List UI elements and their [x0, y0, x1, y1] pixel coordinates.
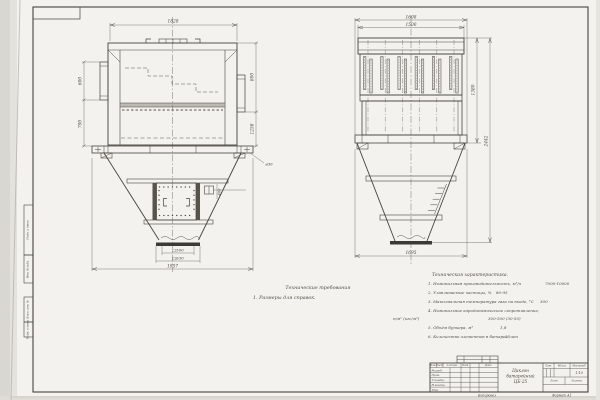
lit-label: Лит.	[544, 365, 552, 368]
format-label: Формат А1	[552, 394, 572, 398]
hatch-post-right	[196, 183, 200, 220]
stamp-row-label: Утв.	[432, 388, 439, 392]
mid-band	[120, 103, 225, 107]
stamp-header-cell: Подп.	[461, 364, 469, 367]
hatch-handles	[164, 199, 190, 207]
spec-row-label: 2. Улавливаемые частицы, %	[427, 290, 492, 295]
dim-label-bottom-width: 1695	[406, 251, 417, 256]
scan-edge-left	[0, 0, 10, 400]
hatch-bolts-horizontal	[160, 187, 194, 216]
copied-label: Копировал	[477, 394, 496, 398]
stamp-row-label: Н.контр.	[431, 383, 446, 387]
margin-label: Инв. № дубл.	[26, 260, 30, 279]
break-line	[397, 236, 425, 239]
left-branch-ticks	[100, 66, 108, 96]
stamp-row-label: Т.контр.	[432, 378, 445, 382]
spec-row-label: 4. Номинальное аэродинамическое сопротив…	[427, 308, 539, 313]
stamp-header-cell: Дата	[484, 364, 492, 367]
dim-line-right-inner	[464, 38, 492, 143]
right-branch-ticks	[237, 79, 245, 108]
dim-line-top	[110, 23, 237, 41]
drawing-sheet: Подп. и дата Инв. № дубл. Взам. инв. № П…	[0, 0, 600, 400]
spec-row-value: 7000-10000	[545, 281, 570, 286]
top-left-stamp-box	[33, 7, 80, 19]
element-dotted-lines	[365, 57, 457, 92]
dim-label-left-lower: 700	[79, 120, 84, 128]
margin-stamp-column: Подп. и дата Инв. № дубл. Взам. инв. № П…	[24, 205, 33, 340]
hatch-bolts-vertical	[159, 191, 194, 213]
dim-label-hatch: 400	[218, 188, 222, 197]
left-branch-flange	[100, 62, 108, 100]
spec-row-value: 300-500 (30-50)	[488, 316, 521, 321]
hatch-rail-top	[127, 179, 228, 183]
dim-label-outlet-inner: □500	[172, 248, 184, 253]
dim-label-right-inner: 1380	[472, 84, 477, 95]
sheet-label: Лист	[549, 380, 558, 383]
margin-label: Подп. и дата	[26, 220, 30, 241]
spec-row-value: 80-95	[496, 290, 508, 295]
dim-label-top-width: 1828	[168, 20, 179, 25]
side-view	[355, 16, 467, 266]
stamp-row-label: Разраб.	[431, 368, 443, 372]
doc-title-line: ЦБ-25	[514, 379, 528, 384]
side-view-dimensions: 1608 1500 1380 2442 1695	[355, 16, 492, 259]
lid-plate-ticks	[166, 39, 180, 43]
break-line	[161, 237, 199, 240]
dim-label-hole: ø30	[264, 162, 273, 167]
dim-label-outlet-outer: □630	[172, 256, 184, 261]
spec-row-value: 25	[504, 334, 511, 339]
scan-edges	[0, 0, 600, 400]
specs-title: Техническая характеристика.	[432, 272, 509, 278]
margin-label: Подп. и дата	[26, 320, 30, 341]
dim-label-right-lower: 1258	[250, 123, 255, 134]
right-branch-flange	[237, 75, 245, 112]
lower-body	[362, 101, 462, 135]
spec-row-label: 3. Максимальная температура газа на вход…	[428, 299, 534, 304]
spec-row-label: 1. Номинальная производительность, м³/ч	[428, 281, 522, 286]
sheets-label: Листов	[570, 380, 582, 383]
spec-row-value: 1,8	[500, 325, 507, 330]
dim-label-left-upper: 600	[79, 77, 84, 85]
hidden-step-line	[125, 68, 218, 92]
outlet-flange	[156, 243, 200, 247]
dim-line-left	[82, 62, 100, 146]
dim-label-top-inner: 1500	[406, 23, 417, 28]
margin-label: Взам. инв. №	[26, 300, 30, 320]
spec-row-value: 300	[540, 299, 548, 304]
revision-extension-lines	[457, 356, 498, 363]
hatch-cover	[157, 183, 197, 220]
front-view	[92, 17, 253, 272]
notes-item: 1. Размеры для справок.	[253, 295, 316, 301]
dim-label-right-upper: 800	[250, 73, 255, 81]
title-block: Изм. Лист № докум. Подп. Дата Разраб. Пр…	[429, 356, 588, 398]
technical-characteristics: Техническая характеристика. 1. Номинальн…	[393, 272, 570, 339]
outlet-flange	[390, 241, 432, 245]
blueprint-canvas: Подп. и дата Инв. № дубл. Взам. инв. № П…	[0, 0, 600, 400]
dim-label-top-outer: 1608	[406, 16, 417, 21]
stamp-header-cell: № докум.	[445, 364, 457, 367]
doc-title-line: батарейный	[506, 374, 535, 379]
stamp-row-label: Пров.	[431, 373, 441, 377]
dim-label-bottom-width: 1957	[167, 265, 178, 270]
scan-edge-right	[596, 0, 600, 400]
spec-row-label: 5. Объём бункера, м³	[428, 325, 473, 330]
lower-body-walls	[366, 101, 458, 135]
ladder-rungs	[428, 188, 445, 210]
notes-title: Технические требования	[285, 284, 350, 291]
technical-requirements: Технические требования 1. Размеры для сп…	[253, 284, 351, 301]
scale-label: Масштаб	[571, 365, 586, 368]
hatch-rail-bottom	[144, 220, 213, 224]
dim-label-right-outer: 2442	[485, 135, 490, 147]
doc-title-line: Циклон	[512, 368, 529, 373]
spec-row-label: н/м² (кгс/м²)	[393, 316, 420, 321]
hatch-post-left	[153, 183, 157, 220]
hole-leader	[250, 153, 264, 163]
stamp-header-cell: Лист	[435, 364, 444, 367]
scale-value: 1:10	[575, 371, 583, 375]
mass-label: Масса	[557, 365, 567, 368]
